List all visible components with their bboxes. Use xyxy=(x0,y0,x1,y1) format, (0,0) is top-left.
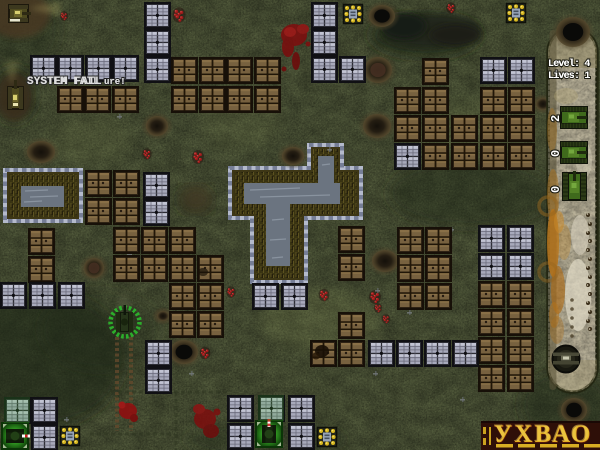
svg-text:SYSTEM FAIL: SYSTEM FAIL xyxy=(27,76,100,88)
svg-text:Lives: 1: Lives: 1 xyxy=(548,70,590,82)
svg-text:ure!: ure! xyxy=(104,77,126,87)
svg-text:0: 0 xyxy=(549,150,563,157)
svg-text:2: 2 xyxy=(549,115,563,122)
svg-text:Level: 4: Level: 4 xyxy=(548,58,590,70)
svg-text:УХВАО: УХВАО xyxy=(493,420,592,447)
svg-text:0: 0 xyxy=(549,186,563,193)
